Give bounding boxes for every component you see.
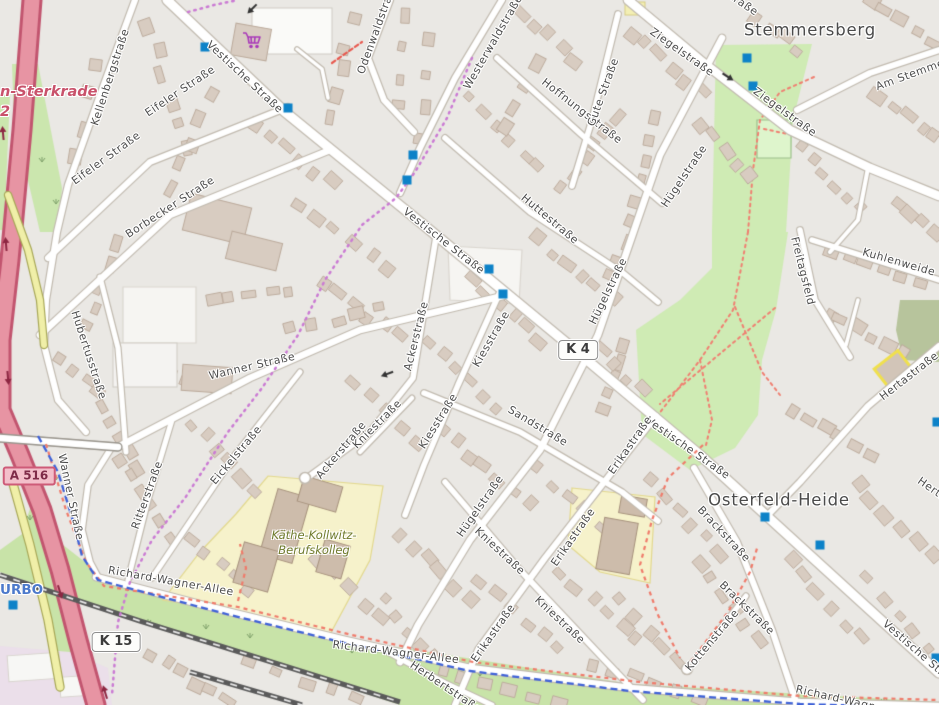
map-container: Stemmersberg Osterfeld-Heide n-Sterkrade…	[0, 0, 939, 705]
map-canvas[interactable]	[0, 0, 939, 705]
